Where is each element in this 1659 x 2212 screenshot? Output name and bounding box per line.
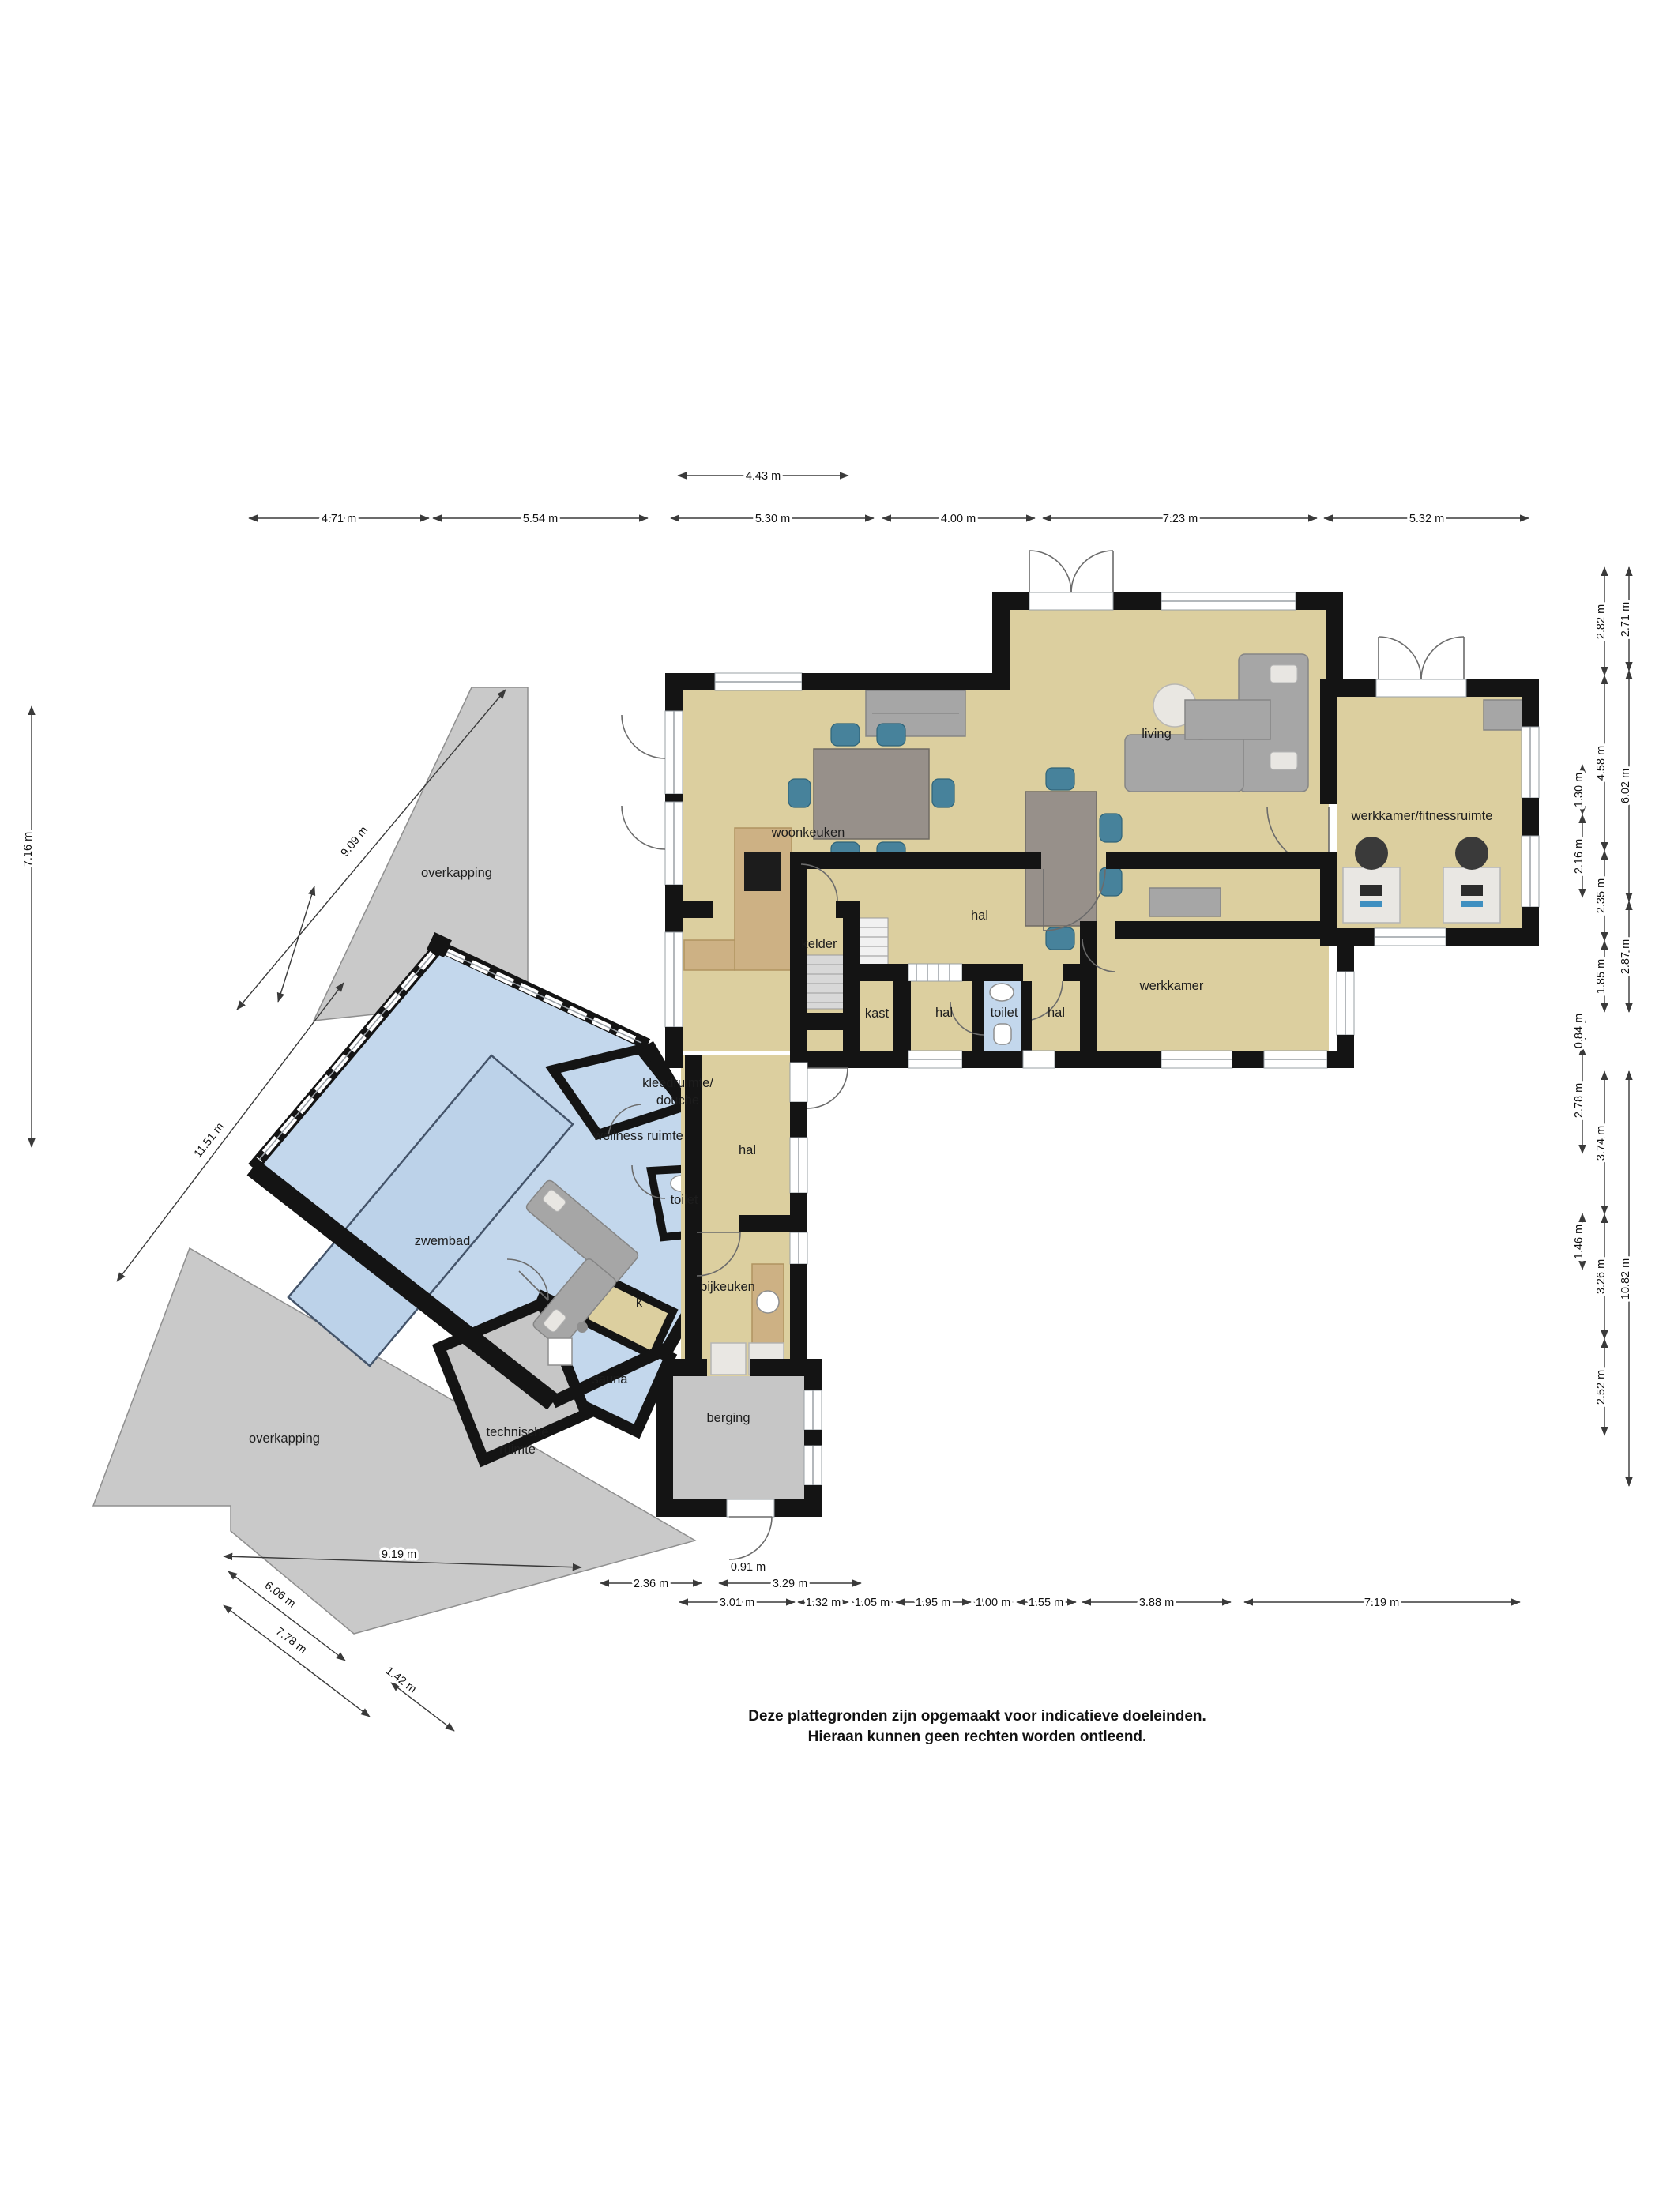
room-label-kelder: kelder (802, 937, 837, 951)
fitness-entry-double-door (1376, 637, 1466, 697)
toilet-main-wc (994, 1024, 1011, 1044)
disclaimer: Deze plattegronden zijn opgemaakt voor i… (748, 1708, 1206, 1745)
chair (1100, 867, 1122, 896)
dim-label: 1.85 m (1595, 959, 1608, 994)
room-label-ruimte: ruimte (499, 1443, 536, 1457)
dim-label: 1.46 m (1573, 1224, 1586, 1259)
werkkamer-cabinet (1149, 888, 1221, 916)
office-chair (1355, 837, 1388, 870)
room-label-hal: hal (1048, 1006, 1065, 1020)
dim-label: 5.54 m (523, 513, 558, 525)
kitchen-island (735, 828, 792, 970)
chair (1100, 814, 1122, 842)
desk-keyboard (1360, 901, 1382, 907)
living-sofa-chaise (1125, 735, 1243, 792)
desk-monitor (1360, 885, 1382, 896)
room-label-wellness-ruimte: wellness ruimte (592, 1129, 683, 1143)
dim-label: 3.29 m (773, 1578, 807, 1590)
dim-label: 4.58 m (1595, 746, 1608, 781)
berging-exit-door (727, 1499, 774, 1559)
chair (1046, 768, 1074, 790)
desk-monitor (1461, 885, 1483, 896)
room-label-hal: hal (971, 908, 988, 923)
room-label-werkkamer: werkkamer (1139, 979, 1204, 993)
sofa-cushion (1270, 752, 1297, 769)
tech-fixture (548, 1338, 572, 1365)
dim-label: 1.55 m (1029, 1597, 1063, 1609)
dim-label: 2.35 m (1595, 878, 1608, 913)
dim-label: 10.82 m (1619, 1258, 1632, 1300)
dim-label: 2.82 m (1595, 604, 1608, 639)
dim-label: 7.16 m (22, 832, 35, 867)
dim-label: 1.32 m (806, 1597, 841, 1609)
dim-label: 2.78 m (1573, 1083, 1586, 1118)
office-chair (1455, 837, 1488, 870)
dim-label: 1.30 m (1573, 773, 1586, 807)
dim-label: 7.78 m (273, 1625, 309, 1656)
dim-label: 3.88 m (1139, 1597, 1174, 1609)
room-label-zwembad: zwembad (415, 1234, 471, 1248)
room-label-technische: technische (487, 1425, 549, 1439)
dim-label: 7.19 m (1364, 1597, 1399, 1609)
disclaimer-line-2: Hieraan kunnen geen rechten worden ontle… (808, 1729, 1147, 1745)
room-label-berging: berging (706, 1411, 750, 1425)
chair (831, 724, 860, 746)
toilet-main-sink (990, 984, 1014, 1001)
dim-label: 5.32 m (1409, 513, 1444, 525)
chair (877, 724, 905, 746)
berging-floor (673, 1376, 804, 1499)
room-label-sauna: sauna (592, 1372, 629, 1386)
dim-label: 1.95 m (916, 1597, 950, 1609)
washer (711, 1343, 746, 1375)
dim-label: 1.05 m (855, 1597, 890, 1609)
living-entry-double-door (1029, 551, 1113, 610)
dim-label: 9.19 m (382, 1548, 416, 1561)
dim-label: 6.06 m (262, 1579, 298, 1610)
disclaimer-line-1: Deze plattegronden zijn opgemaakt voor i… (748, 1708, 1206, 1725)
room-label-kleedruimte: kleedruimte/ (642, 1076, 713, 1090)
bijkeuken-sink (757, 1291, 779, 1313)
dim-label: 6.02 m (1619, 769, 1632, 803)
room-label-douche: douche (656, 1093, 699, 1108)
dim-label: 1.42 m (383, 1665, 419, 1695)
dim-label: 9.09 m (339, 824, 371, 860)
dim-label: 4.00 m (941, 513, 976, 525)
room-label-werkkamer-fitnessruimte: werkkamer/fitnessruimte (1351, 809, 1493, 823)
hal-glass-partition (908, 964, 962, 981)
floorplan-canvas: 4.43 m 4.71 m 5.54 m 5.30 m 4.00 m 7.23 … (0, 0, 1659, 2212)
room-label-living: living (1142, 727, 1172, 741)
room-label-overkapping: overkapping (249, 1431, 320, 1446)
dim-label: 3.74 m (1595, 1126, 1608, 1161)
room-label-hal: hal (739, 1143, 756, 1157)
dim-label: 2.52 m (1595, 1370, 1608, 1405)
dim-label: 7.23 m (1163, 513, 1198, 525)
dim-label: 2.16 m (1573, 839, 1586, 874)
room-label-toilet: toilet (991, 1006, 1018, 1020)
kelder-stairs (804, 955, 847, 1009)
living-sideboard (1185, 700, 1270, 739)
room-label-hal: hal (935, 1006, 953, 1020)
dim-label: 11.51 m (192, 1120, 227, 1160)
floorplan-page: 4.43 m 4.71 m 5.54 m 5.30 m 4.00 m 7.23 … (0, 0, 1659, 2212)
dim-label: 5.30 m (755, 513, 790, 525)
chair (788, 779, 811, 807)
room-label-woonkeuken: woonkeuken (771, 826, 845, 840)
kitchen-island-l (684, 940, 735, 970)
dim-label: 4.71 m (322, 513, 356, 525)
sofa-cushion (1270, 665, 1297, 683)
dim-label: 2.71 m (1619, 602, 1632, 637)
dim-label: 1.00 m (976, 1597, 1010, 1609)
room-label-overkapping: overkapping (421, 866, 492, 880)
tech-tap (577, 1322, 588, 1333)
dim-label: 3.26 m (1595, 1259, 1608, 1294)
door-arc (622, 806, 665, 849)
dim-label: 0.84 m (1573, 1014, 1586, 1048)
cooktop (744, 852, 781, 891)
lower-wing-exit-door (790, 1063, 848, 1108)
room-label-toilet: toilet (671, 1193, 698, 1207)
dim-label: 2.87 m (1619, 939, 1632, 974)
desk-keyboard (1461, 901, 1483, 907)
room-label-kast: kast (865, 1006, 890, 1021)
door-arc (622, 715, 665, 758)
dim-label: 0.91 m (731, 1561, 766, 1574)
dim-label: 2.36 m (634, 1578, 668, 1590)
room-label-bijkeuken: bijkeuken (700, 1280, 755, 1294)
chair (932, 779, 954, 807)
dim-label: 3.01 m (720, 1597, 754, 1609)
dim-label: 4.43 m (746, 470, 781, 483)
room-label-k: k (636, 1296, 643, 1310)
